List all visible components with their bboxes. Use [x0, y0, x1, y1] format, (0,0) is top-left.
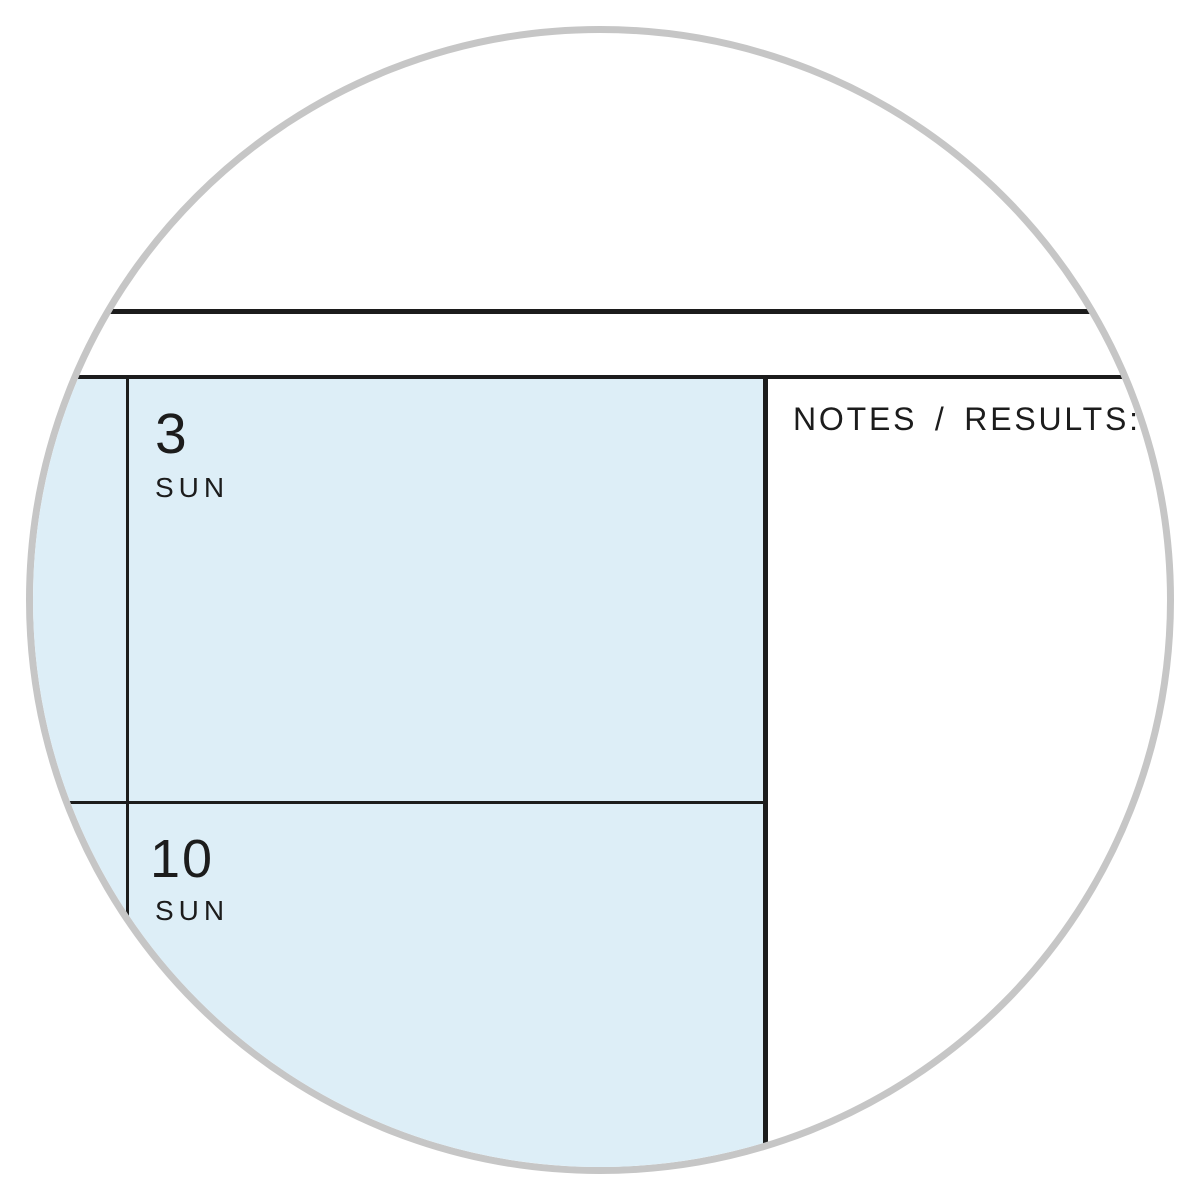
- day-number-10: 10: [150, 832, 214, 886]
- planner-zoom-detail-view: 3 SUN 10 SUN NOTES / RESULTS:: [0, 0, 1200, 1200]
- weekday-label-sun-1: SUN: [155, 474, 229, 502]
- week-row-divider: [26, 801, 768, 804]
- magnifier-circle: 3 SUN 10 SUN NOTES / RESULTS:: [26, 26, 1174, 1174]
- notes-results-header: NOTES / RESULTS:: [793, 403, 1141, 435]
- day-number-3: 3: [155, 406, 189, 463]
- day-cell-left-border: [126, 375, 129, 1174]
- page-header-rule: [26, 309, 1174, 314]
- notes-column-divider: [763, 375, 768, 1174]
- weekday-label-sun-2: SUN: [155, 897, 229, 925]
- day-cells-background: [26, 379, 765, 1174]
